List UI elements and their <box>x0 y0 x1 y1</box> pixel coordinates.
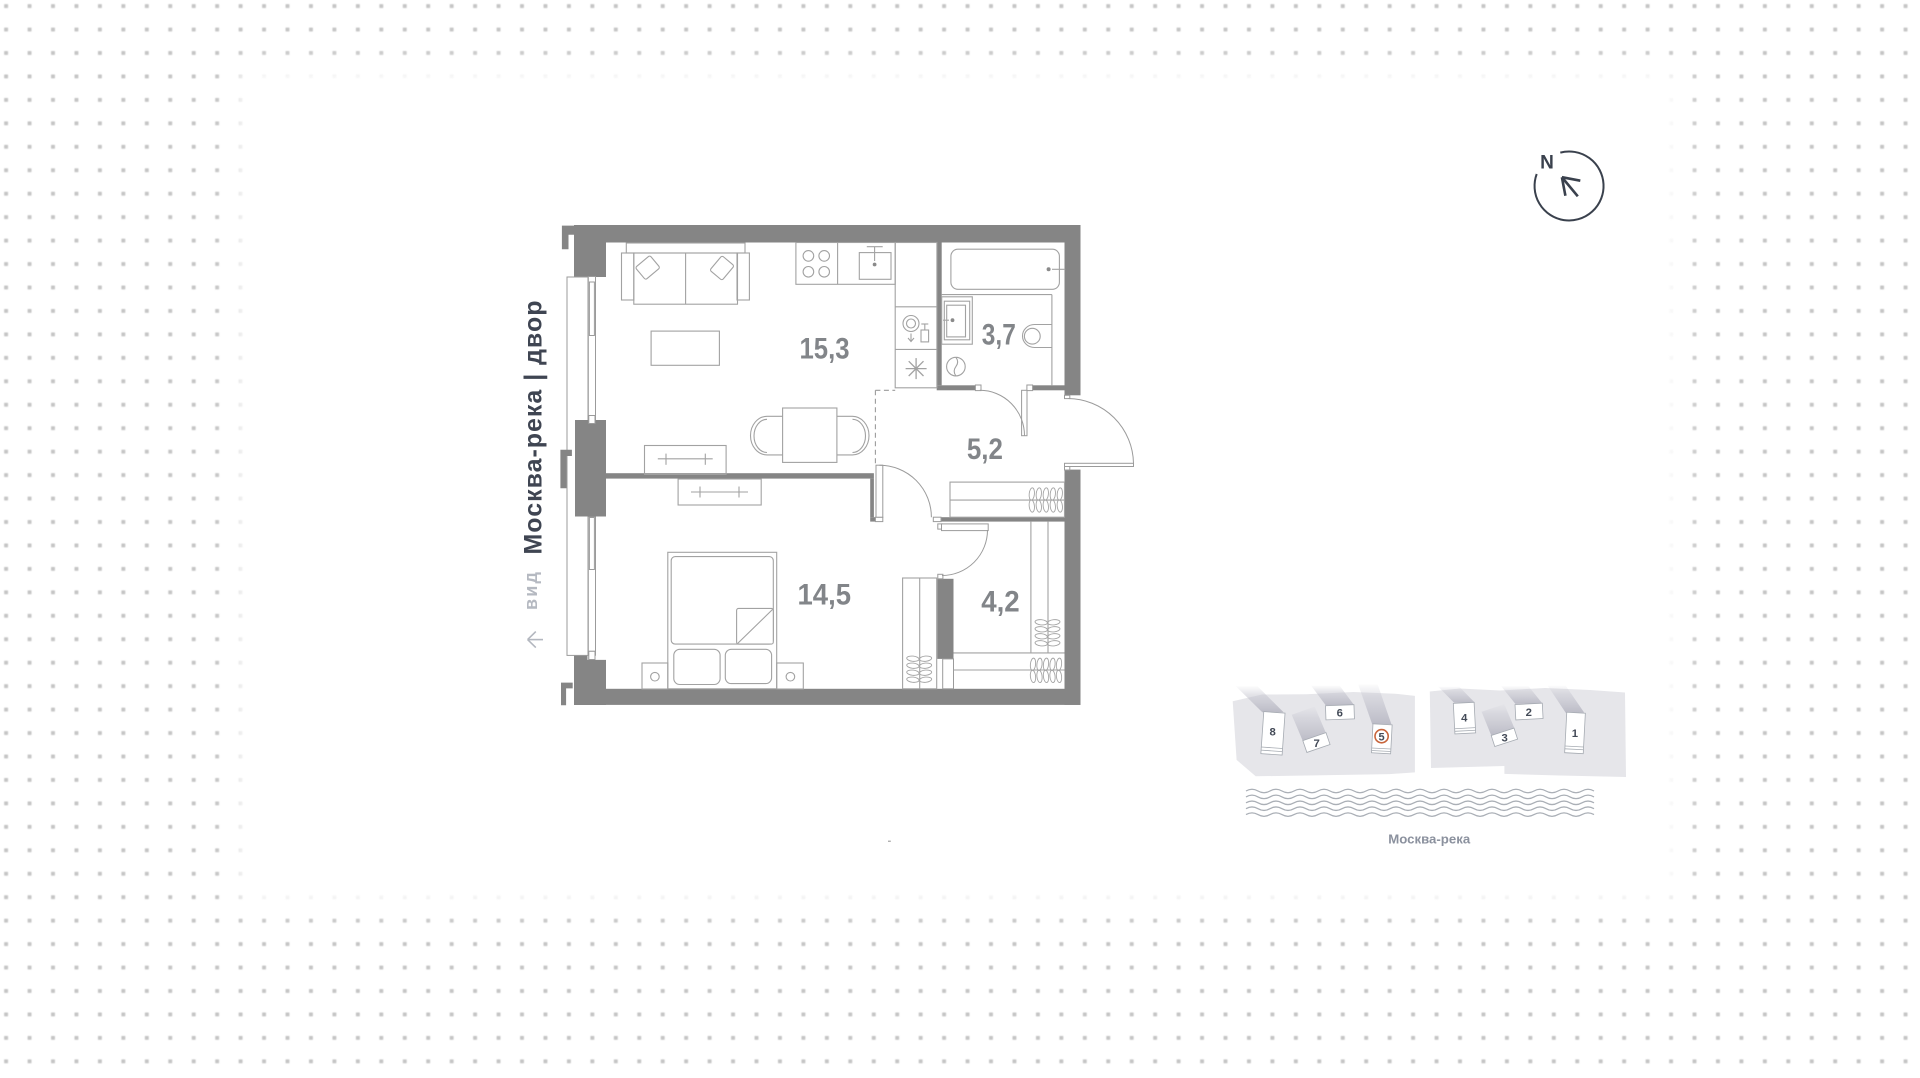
svg-text:3,7: 3,7 <box>982 319 1016 352</box>
svg-text:1: 1 <box>1572 728 1578 740</box>
svg-text:Москва-река: Москва-река <box>1388 832 1471 847</box>
svg-text:5: 5 <box>1379 732 1385 744</box>
svg-text:4,2: 4,2 <box>981 585 1020 618</box>
svg-text:4: 4 <box>1461 713 1468 725</box>
svg-text:15,3: 15,3 <box>800 333 850 366</box>
svg-text:вид: вид <box>521 571 541 610</box>
svg-text:Москва-река | двор: Москва-река | двор <box>520 301 548 555</box>
svg-text:5,2: 5,2 <box>967 433 1003 466</box>
svg-text:14,5: 14,5 <box>798 579 852 612</box>
svg-text:3: 3 <box>1501 733 1507 745</box>
svg-text:N: N <box>1540 153 1554 174</box>
svg-text:7: 7 <box>1313 738 1319 750</box>
svg-text:2: 2 <box>1526 707 1532 719</box>
svg-text:8: 8 <box>1270 727 1276 739</box>
svg-text:6: 6 <box>1337 708 1343 720</box>
